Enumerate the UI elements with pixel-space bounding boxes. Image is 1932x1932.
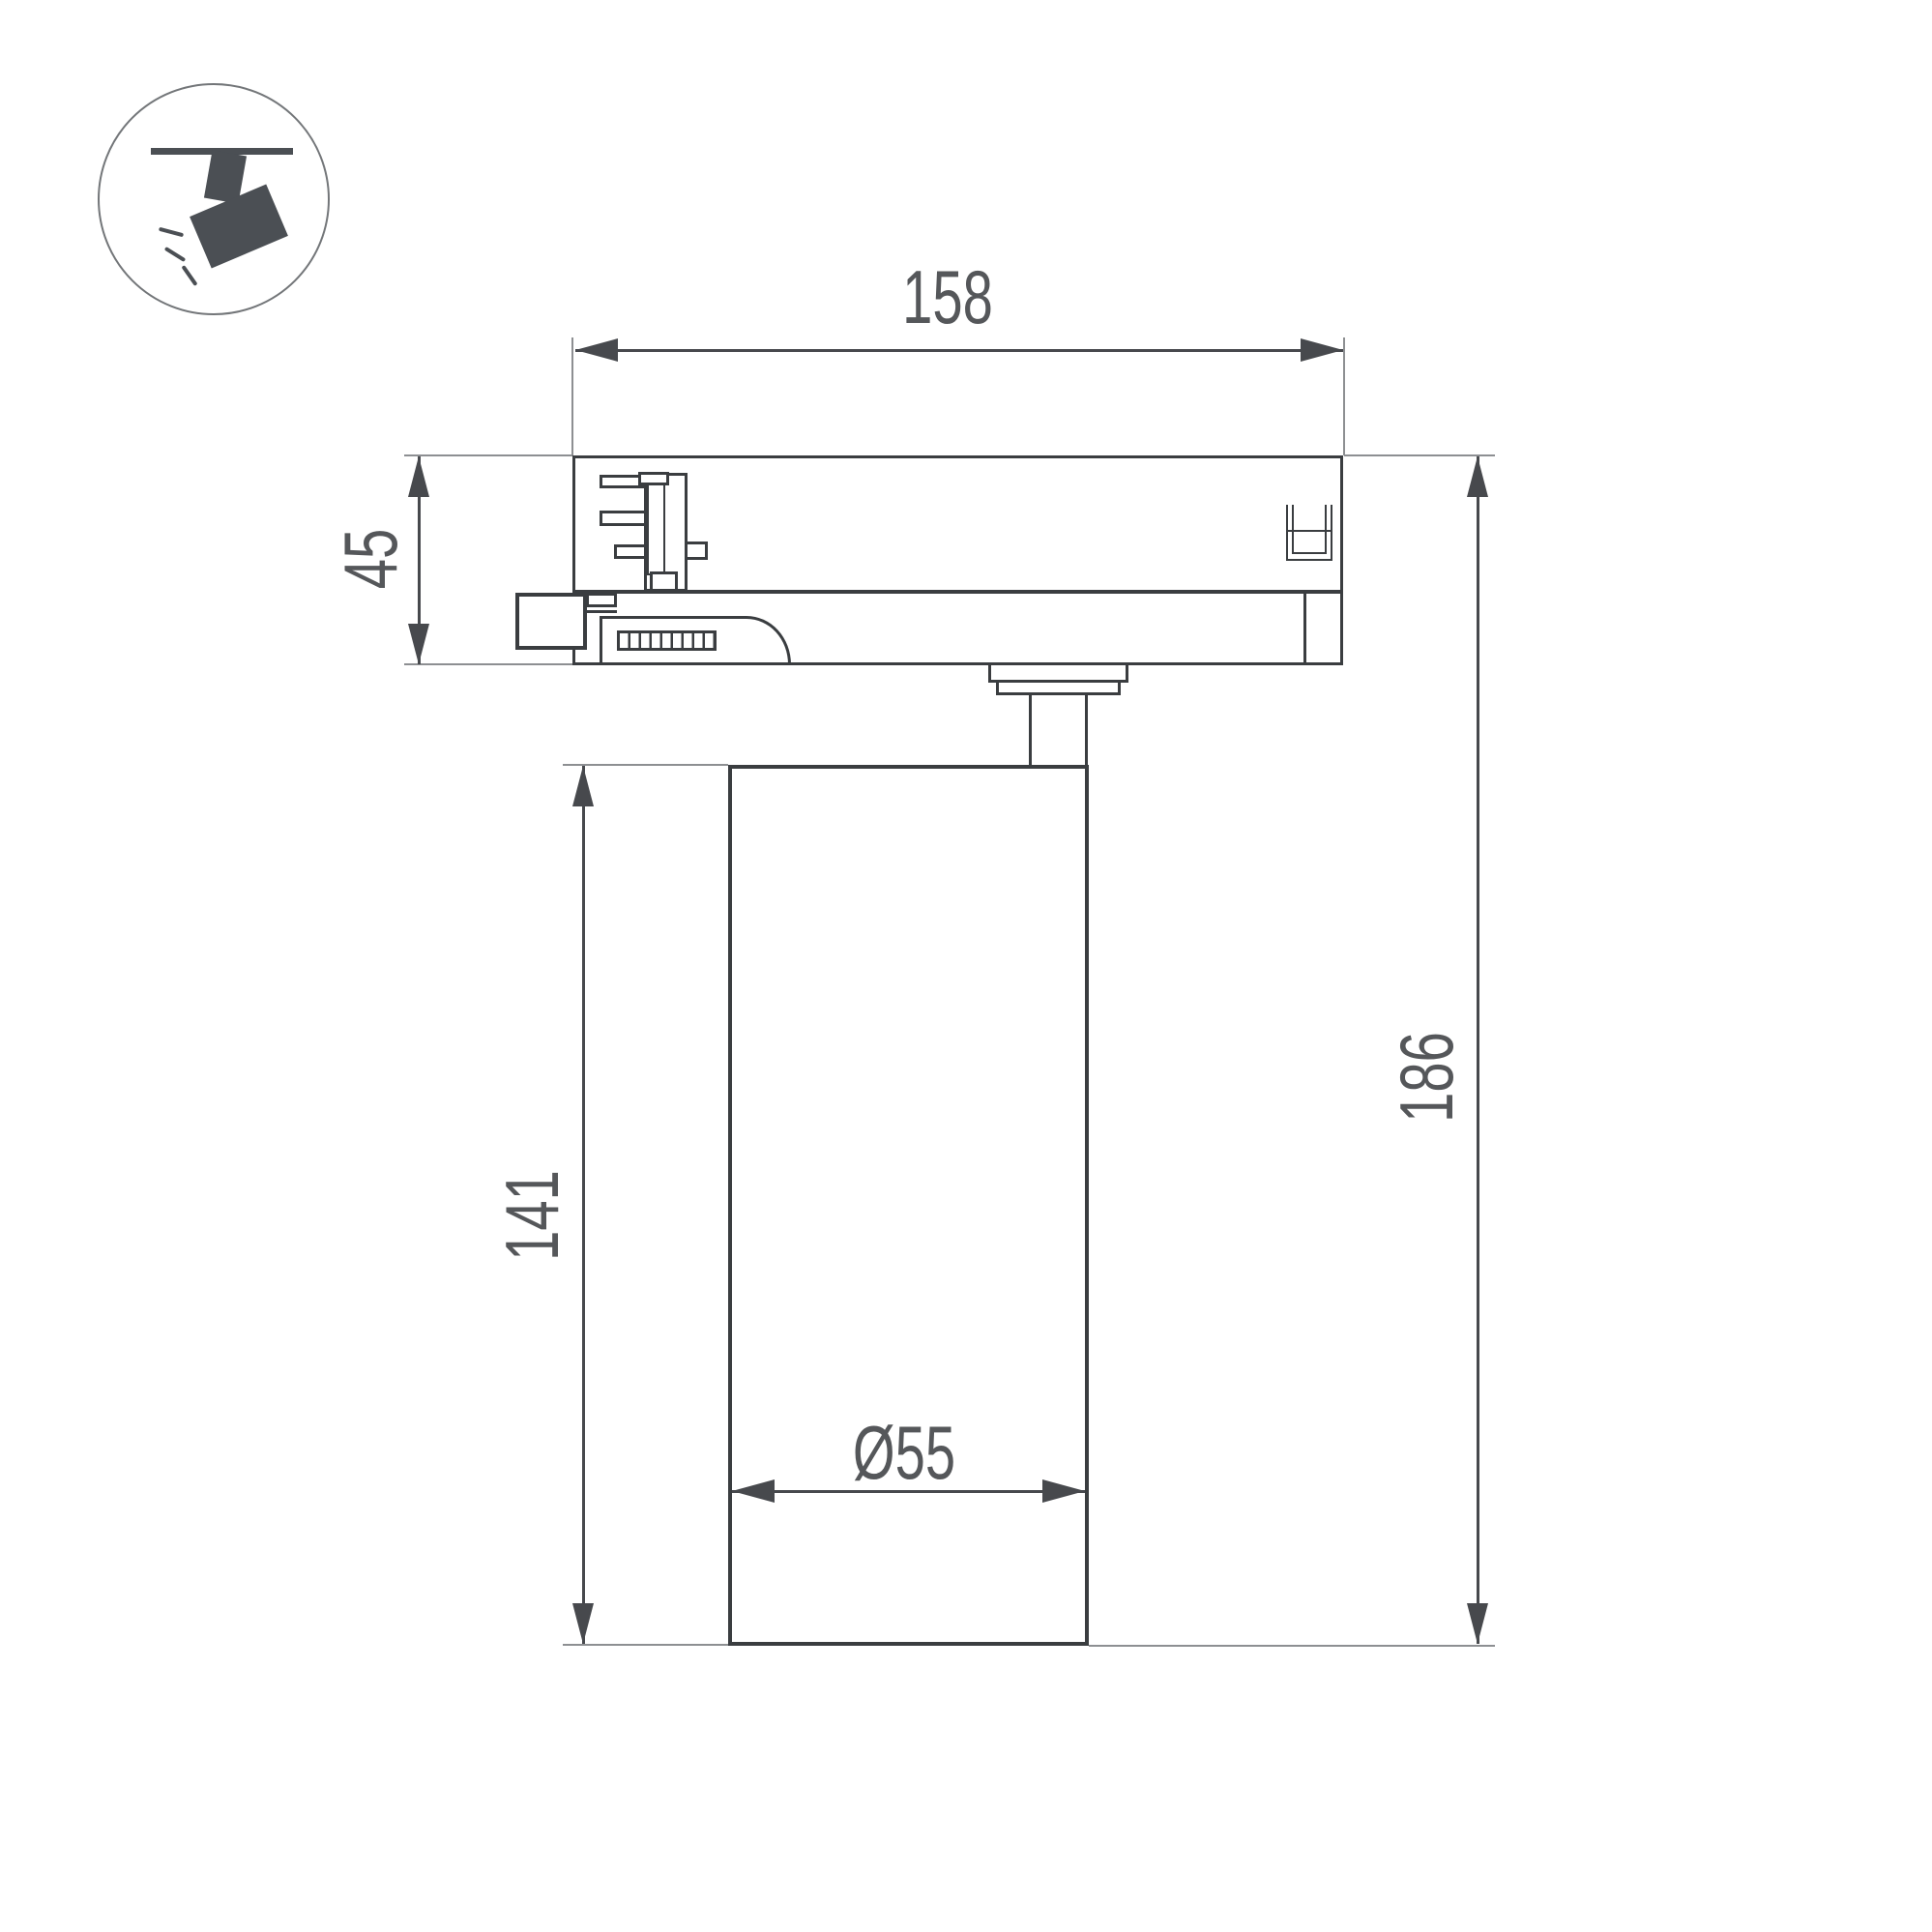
arrowhead: [1467, 1603, 1488, 1644]
arrowhead: [408, 624, 429, 664]
arrowhead: [732, 1479, 775, 1503]
extension-line: [1343, 337, 1345, 455]
extension-line: [1089, 1645, 1495, 1647]
extension-line: [404, 454, 572, 456]
lock-latch: [586, 593, 617, 607]
dimension-line-141: [582, 766, 585, 1644]
arrowhead: [572, 1603, 594, 1644]
dimension-line-186: [1477, 456, 1479, 1644]
adapter-end-compartment-line: [1303, 593, 1306, 663]
arrowhead: [575, 338, 618, 362]
extension-line: [404, 663, 572, 665]
lamp-cylinder-body: [728, 765, 1089, 1646]
dimension-label-width: 158: [843, 253, 1052, 340]
arrowhead: [1042, 1479, 1085, 1503]
contact-pin-foot: [650, 571, 678, 592]
track-adapter-upper-body: [572, 455, 1343, 593]
dimension-label-body-height: 141: [488, 1146, 575, 1285]
extension-line: [563, 1644, 728, 1646]
ribbed-grip: [617, 630, 717, 651]
drawing-canvas: 158 45 141 186 Ø55: [0, 0, 1932, 1932]
extension-line: [571, 337, 573, 455]
stem-column: [1029, 692, 1088, 768]
lock-latch-line: [586, 610, 617, 613]
contact-pin-cap: [638, 472, 669, 485]
dimension-label-total-height: 186: [1383, 1008, 1470, 1147]
arrowhead: [1301, 338, 1343, 362]
arrowhead: [1467, 456, 1488, 497]
arrowhead: [572, 766, 594, 806]
contact-tab-bottom: [614, 544, 647, 559]
ground-clip-crossbar: [1288, 530, 1331, 532]
dimension-label-diameter: Ø55: [800, 1409, 1009, 1496]
lock-block: [515, 593, 587, 650]
dimension-line-158: [575, 349, 1343, 352]
contact-tab-middle: [600, 511, 647, 526]
dimension-label-adapter-height: 45: [327, 489, 414, 629]
contact-pin-shaft: [647, 483, 665, 575]
contact-tab-right: [685, 542, 708, 560]
